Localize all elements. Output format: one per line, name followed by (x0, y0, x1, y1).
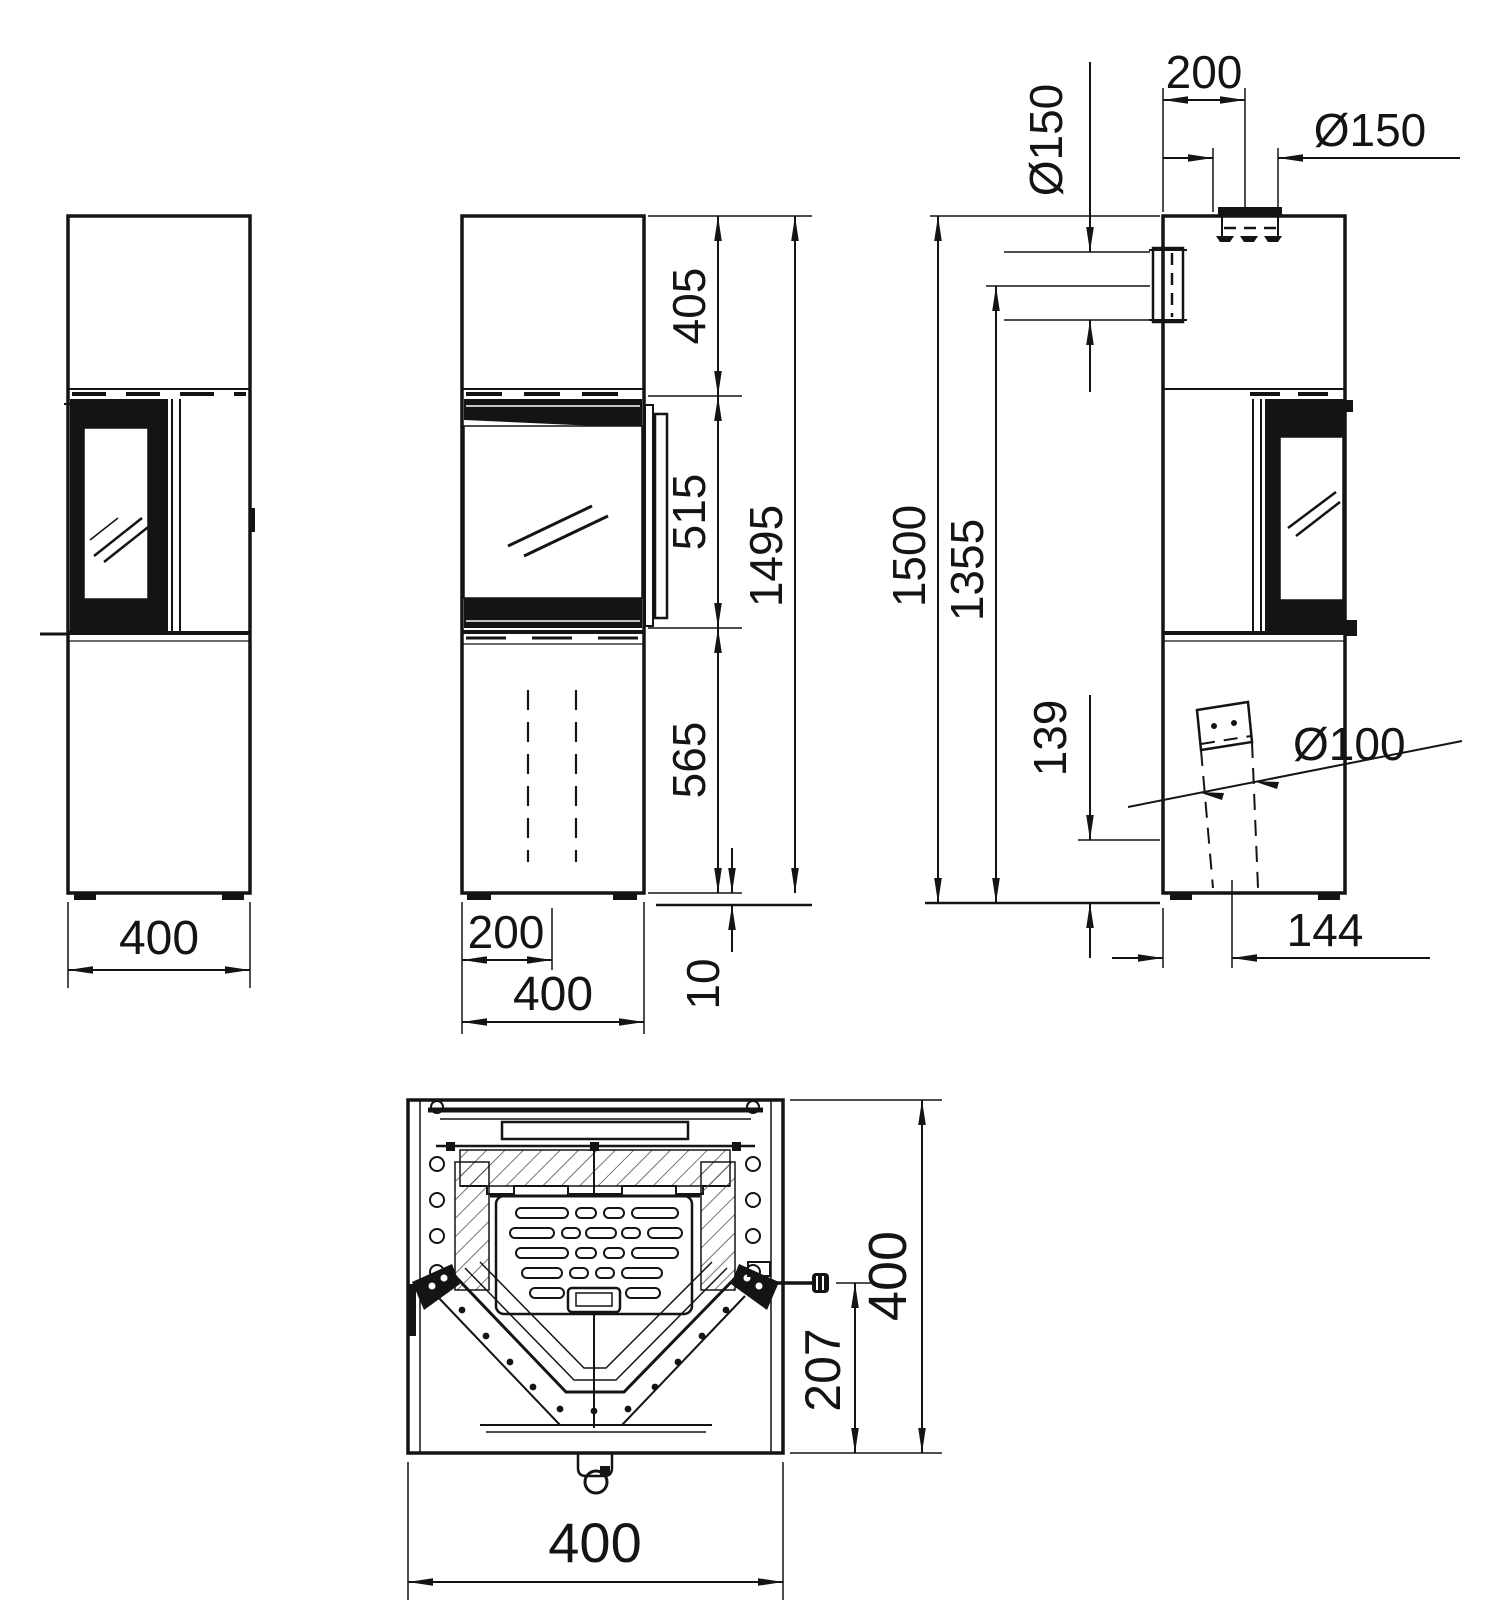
air-intake-duct (1197, 702, 1258, 888)
dim-left-width-label: 400 (119, 912, 199, 965)
dim-front-top-label: 405 (663, 268, 715, 345)
top-flue-collar (1216, 207, 1282, 242)
dim-right-height-total-label: 1500 (883, 505, 935, 607)
stove-dimension-drawing: 400 (0, 0, 1500, 1620)
front-window (464, 399, 642, 628)
dim-plan-width-label: 400 (548, 1511, 641, 1574)
dim-front-half-width-label: 200 (468, 906, 545, 958)
dim-front-width-label: 400 (513, 968, 593, 1021)
view-plan-section (408, 1100, 829, 1493)
dim-right-rear-flue-dia-label: Ø150 (1020, 84, 1072, 197)
door-latch-ring (578, 1453, 612, 1493)
dims-front-right: 405 515 565 1495 10 (648, 216, 812, 1010)
dim-front-base-label: 565 (663, 722, 715, 799)
dim-right-air-intake-dia-label: Ø100 (1293, 718, 1406, 770)
side-window-left (40, 399, 180, 634)
dim-front-total-label: 1495 (740, 505, 792, 607)
dims-right: Ø150 200 Ø150 1500 1355 139 Ø100 (883, 46, 1462, 968)
foot (467, 893, 491, 900)
foot (222, 893, 244, 900)
side-window-right (1253, 399, 1357, 636)
rear-flue-collar (1149, 248, 1187, 322)
dim-left-width: 400 (68, 902, 250, 988)
dim-front-feet-label: 10 (677, 958, 729, 1009)
view-side-left (40, 216, 255, 900)
view-front (462, 216, 667, 900)
foot (613, 893, 637, 900)
foot (74, 893, 96, 900)
dim-right-air-intake-height-label: 139 (1024, 700, 1076, 777)
foot (1170, 893, 1192, 900)
technical-drawing-page: 400 (0, 0, 1500, 1620)
dim-right-rear-flue-height-label: 1355 (941, 519, 993, 621)
dim-plan-handle-depth-label: 207 (795, 1328, 851, 1411)
dim-right-top-flue-dia-label: Ø150 (1314, 104, 1427, 156)
dim-front-window-label: 515 (663, 474, 715, 551)
foot (1318, 893, 1340, 900)
dim-right-air-intake-offset-label: 144 (1287, 904, 1364, 956)
dims-front-bottom: 200 400 (462, 902, 644, 1034)
dim-right-top-flue-offset-label: 200 (1166, 46, 1243, 98)
dim-plan-depth-label: 400 (858, 1231, 918, 1321)
